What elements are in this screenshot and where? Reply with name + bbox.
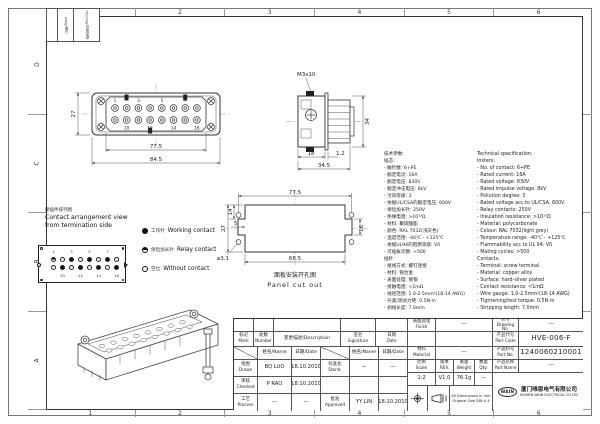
spec-line-en: - Rated current: 16A xyxy=(477,172,581,179)
contact-dot xyxy=(105,265,110,270)
part-code-value: HVE-006-F xyxy=(519,332,583,346)
grid-ref-number: 5 xyxy=(405,410,495,417)
spec-line-en: - Tightening/test torque: 0.5N·m xyxy=(477,298,581,305)
revision-box-empty xyxy=(46,8,58,42)
dim-side-gap: 1.2 xyxy=(336,151,345,157)
grid-ref-number: 3 xyxy=(225,8,315,16)
spec-line-en: - Relay contacts: 250V xyxy=(477,207,581,214)
spec-line-en: Insters: xyxy=(477,158,581,165)
arrangement-row-bottom xyxy=(51,265,119,270)
spec-line-en: - No. of contact: 6+PE xyxy=(477,165,581,172)
dim-side-depth: 18 xyxy=(308,151,315,157)
spec-line-en: - Material: polycarbonate xyxy=(477,221,581,228)
grid-ref-number: 5 xyxy=(405,8,495,16)
relay-contact-icon xyxy=(142,247,148,253)
title-block: 表面处理Finish — 图号Drawing No. — 标记Mark 处数Nu… xyxy=(233,318,583,410)
pin-number: 10 xyxy=(124,126,130,131)
arr-pin-number: 3 xyxy=(70,249,72,254)
grid-ruler-bottom: 123456 xyxy=(46,410,583,417)
arr-pin-number: 10 xyxy=(60,273,65,278)
spec-line-cn: 插针: xyxy=(384,256,476,263)
spec-line-cn: - 材料: 铜合金 xyxy=(384,270,476,277)
contact-dot xyxy=(87,257,92,262)
contact-dot xyxy=(78,257,83,262)
spec-line-cn: - 剥线长度: 7.0mm xyxy=(384,305,476,312)
spec-line-cn: - 依据UL94的阻燃等级: V0 xyxy=(384,242,476,249)
grid-ref-number: 2 xyxy=(136,8,226,16)
contact-dot xyxy=(69,257,74,262)
pin-number: 3 xyxy=(137,98,140,103)
contact-dot xyxy=(96,265,101,270)
part-name-value: — xyxy=(519,360,583,372)
grid-ref-number: 4 xyxy=(315,8,405,16)
spec-line-cn: - 接触电阻: <1mΩ xyxy=(384,284,476,291)
spec-line-cn: - 额定电流: 16A xyxy=(384,172,476,179)
guide-slot-icon xyxy=(124,262,128,268)
contact-dot xyxy=(51,257,56,262)
spec-line-cn: 技术参数: xyxy=(384,151,476,158)
spec-line-en: - Surface: hard-silver plated xyxy=(477,277,581,284)
grid-ref-letter: D xyxy=(28,16,46,115)
revision-header-row: 标记Mark 处数Number 变更描述/Description 签名Signa… xyxy=(234,332,583,347)
spec-line-cn: - 颜色: RAL 7032(浅灰色) xyxy=(384,228,476,235)
spec-line-cn: - 额定冲击电压: 8kV xyxy=(384,186,476,193)
scale-weight-block: 比例Scale 版本REV. 重量Weight 数量Qty. 1:2 V1.0 … xyxy=(408,360,493,411)
spec-line-en: - Mating cycles: >500 xyxy=(477,249,581,256)
legend-without-contact: 空位Without contact xyxy=(142,266,209,272)
contact-dot xyxy=(78,265,83,270)
without-contact-icon xyxy=(142,266,148,272)
contact-dot xyxy=(60,257,65,262)
grid-ref-letter: C xyxy=(28,115,46,214)
spec-line-cn: - 表面处理: 镀银 xyxy=(384,277,476,284)
guide-pin-icon xyxy=(37,263,41,267)
arr-pin-number: 5 xyxy=(88,249,90,254)
dim-cutout-bottom: 68.5 xyxy=(289,256,302,262)
grid-ruler-top: 123456 xyxy=(46,8,583,16)
contact-dot xyxy=(105,257,110,262)
revision-empty-row: 表面处理Finish — 图号Drawing No. — xyxy=(234,319,583,332)
dim-side-total: 34.5 xyxy=(318,163,331,169)
spec-line-en: - Contact resistance: <1mΩ xyxy=(477,284,581,291)
pin-number: 12 xyxy=(147,126,153,131)
wain-logo: WAIN xyxy=(498,387,517,397)
dim-side-height: 34 xyxy=(365,118,371,125)
dim-cutout-left-inner: 14 xyxy=(228,208,234,215)
qty-value: — xyxy=(475,373,493,385)
front-view-drawing: 1 3 5 7 10 12 14 16 77.5 84.5 27 xyxy=(60,58,280,183)
dim-front-outer-width: 84.5 xyxy=(150,157,163,163)
contact-dot xyxy=(69,265,74,270)
engineering-drawing-sheet: 123456 123456 DCBA 日期/Date 更改单号/Rev.Doc xyxy=(0,0,600,424)
arrangement-title-en: Contact arrangement view from terminatio… xyxy=(45,214,128,229)
scale-value: 1:2 xyxy=(408,373,436,385)
spec-line-cn: - 触针数: 6+PE xyxy=(384,165,476,172)
contact-arrangement-section: 接插件排列图 Contact arrangement view from ter… xyxy=(38,205,228,297)
contact-dot xyxy=(114,257,119,262)
spec-line-en: Contacts: xyxy=(477,256,581,263)
part-no-value: 1240060210001 xyxy=(519,347,583,359)
spec-line-cn: - 额定电压: 830V xyxy=(384,179,476,186)
spec-line-cn: - 可插拔次数: >500 xyxy=(384,249,476,256)
contact-dot xyxy=(87,265,92,270)
spec-line-en: - Insulation resistance: >10¹⁰Ω xyxy=(477,214,581,221)
grid-ref-number: 6 xyxy=(494,410,583,417)
pin-number: 7 xyxy=(184,98,187,103)
revision-box-doc: 更改单号/Rev.Doc xyxy=(74,8,100,42)
drawing-no-value: — xyxy=(519,319,583,331)
arr-pin-number: 16 xyxy=(114,273,119,278)
spec-line-cn: - 材料: 聚碳酸酯 xyxy=(384,221,476,228)
revision-subheader-row: 姓名/Name 日期/Date 姓名/Name 日期/Date 材料Materi… xyxy=(234,347,583,360)
spec-line-en: - Colour: RAL 7032(light grey) xyxy=(477,228,581,235)
spec-line-cn: - 接线方式: 螺钉连接 xyxy=(384,263,476,270)
contact-dot xyxy=(114,265,119,270)
dim-front-inner-width: 77.5 xyxy=(150,144,163,150)
company-cell: WAIN 厦门唯恩电气有限公司 XIAMEN WAIN ELECTRICAL C… xyxy=(493,373,583,411)
arr-pin-number: 14 xyxy=(96,273,101,278)
thread-callout: M3x10 xyxy=(297,72,316,78)
arrangement-box: 1 3 5 7 10 12 14 16 xyxy=(38,245,126,283)
spec-line-en: - Pollution degree: 3 xyxy=(477,193,581,200)
material-value: — xyxy=(436,347,493,359)
arr-pin-number: 7 xyxy=(106,249,108,254)
arr-pin-number: 1 xyxy=(52,249,54,254)
projection-cone-icon xyxy=(431,394,447,403)
panel-cutout-drawing: 77.5 68.5 27 14 5 16 ⌀3.1 面板安装开孔图 Panel … xyxy=(215,185,395,305)
dim-front-height: 27 xyxy=(71,110,77,117)
pin-number: 16 xyxy=(194,126,200,131)
spec-line-en: - Rated impulse voltage: 8kV xyxy=(477,186,581,193)
spec-line-en: - Temperature range: -40℃ - +125℃ xyxy=(477,235,581,242)
grid-ref-number: 2 xyxy=(136,410,226,417)
spec-line-en: - Wire gauge: 1.0-2.5mm²(18-14 AWG) xyxy=(477,291,581,298)
grid-ref-number: 3 xyxy=(225,410,315,417)
spec-line-cn: - 依据UL/CSA的额定电压: 600V xyxy=(384,200,476,207)
revision-corner-block: 日期/Date 更改单号/Rev.Doc xyxy=(46,8,100,42)
part-name-company-block: 产品名称Part Name — WAIN 厦门唯恩电气有限公司 XIAMEN W… xyxy=(493,360,583,411)
spec-line-cn: - 温度范围: -40℃ - +125℃ xyxy=(384,235,476,242)
isometric-view-drawing xyxy=(40,293,230,408)
spec-line-cn: 插芯: xyxy=(384,158,476,165)
spec-line-cn: - 保险加长针: 250V xyxy=(384,207,476,214)
dim-cutout-top: 77.5 xyxy=(289,190,302,196)
spec-line-en: Technical specification: xyxy=(477,151,581,158)
side-view-drawing: M3x10 18 1.2 34.5 34 xyxy=(270,58,395,183)
contact-dot xyxy=(96,257,101,262)
grid-ref-number: 6 xyxy=(494,8,583,16)
spec-line-en: - Rated voltage: 830V xyxy=(477,179,581,186)
company-name-en: XIAMEN WAIN ELECTRICAL CO.LTD xyxy=(520,393,578,397)
dim-cutout-right: 16 xyxy=(359,225,365,232)
contact-dot xyxy=(51,265,56,270)
rev-value: V1.0 xyxy=(436,373,454,385)
cutout-caption-cn: 面板安装开孔图 xyxy=(274,271,316,279)
spec-list-en: Technical specification:Insters:- No. of… xyxy=(477,151,581,312)
spec-line-en: - Terminal: screw terminal xyxy=(477,263,581,270)
spec-line-en: - Flammability acc.to UL 94: V0 xyxy=(477,242,581,249)
cutout-caption-en: Panel cut out xyxy=(267,281,323,289)
weight-value: 76.1g xyxy=(454,373,475,385)
first-angle-projection-icon xyxy=(411,393,424,404)
arrangement-title-cn: 接插件排列图 xyxy=(45,207,72,213)
contact-dot xyxy=(60,265,65,270)
spec-line-cn: - 绝缘电阻: >10¹⁰Ω xyxy=(384,214,476,221)
spec-line-cn: - 污染等级: 3 xyxy=(384,193,476,200)
spec-line-en: - Rated voltage acc.to UL/CSA: 600V xyxy=(477,200,581,207)
dim-cutout-notch: 5 xyxy=(234,221,238,227)
grid-ruler-right xyxy=(583,16,592,410)
grid-ref-number: 1 xyxy=(46,410,136,417)
spec-line-en: - Material: copper alloy xyxy=(477,270,581,277)
legend-working-contact: 工作针Working contact xyxy=(142,228,215,234)
spec-line-cn: - 线径范围: 1.0-2.5mm²(18-14 AWG) xyxy=(384,291,476,298)
spec-line-en: - Stripping length: 7.0mm xyxy=(477,305,581,312)
signature-rows: 绘图Drawn BQ LUO 18.10.2010 标准化Stand. — — … xyxy=(234,360,408,411)
arr-pin-number: 12 xyxy=(78,273,83,278)
pin-number: 1 xyxy=(114,98,117,103)
pin-number: 14 xyxy=(171,126,177,131)
legend-relay-contact: 保险加长针Relay contact xyxy=(142,247,216,253)
pin-number: 5 xyxy=(160,98,163,103)
working-contact-icon xyxy=(142,228,148,234)
paper-size-note: Original Size DIN A 4 xyxy=(452,399,489,403)
spec-list-cn: 技术参数:插芯:- 触针数: 6+PE- 额定电流: 16A- 额定电压: 83… xyxy=(384,151,476,312)
revision-box-date: 日期/Date xyxy=(58,8,74,42)
finish-value: — xyxy=(436,319,493,331)
grid-ref-number: 4 xyxy=(315,410,405,417)
spec-line-cn: - 拧紧/测试力矩: 0.5N·m xyxy=(384,298,476,305)
arrangement-row-top xyxy=(51,257,119,262)
